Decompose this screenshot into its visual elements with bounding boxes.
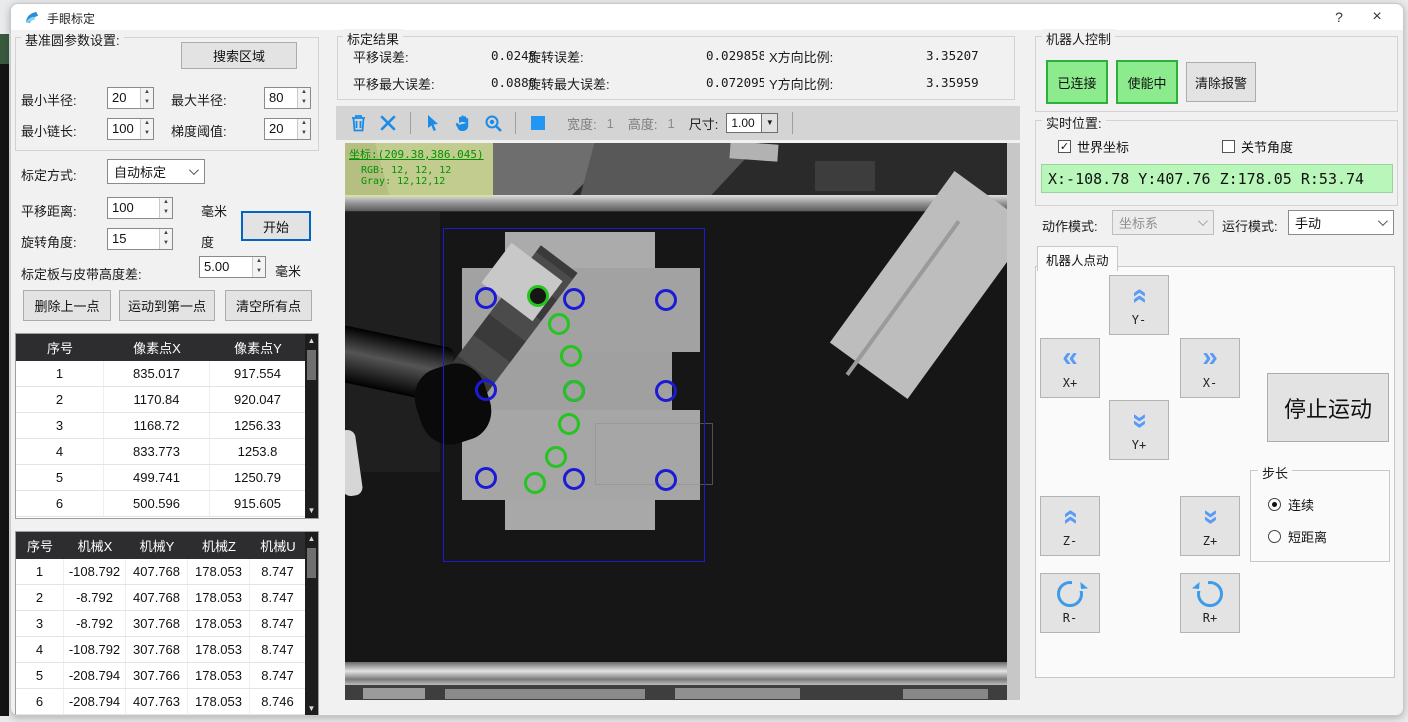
chevron-down-icon <box>1198 216 1208 226</box>
min-chain-label: 最小链长: <box>21 121 77 140</box>
pixel-table-scrollbar[interactable]: ▲▼ <box>305 334 318 518</box>
jog-r-plus-button[interactable]: R+ <box>1180 573 1240 633</box>
table-cell: 307.766 <box>126 663 188 688</box>
jog-x-minus-button[interactable]: » X- <box>1180 338 1240 398</box>
table-row[interactable]: 3-8.792307.768178.0538.747 <box>16 611 318 637</box>
table-cell: 5 <box>16 465 104 490</box>
table-cell: 307.768 <box>126 611 188 636</box>
table-cell: -108.792 <box>64 637 126 662</box>
height-diff-unit: 毫米 <box>275 261 301 280</box>
rotate-counterclockwise-icon <box>1197 581 1223 607</box>
calib-mode-select[interactable]: 自动标定 <box>107 159 205 184</box>
position-readout: X:-108.78 Y:407.76 Z:178.05 R:53.74 <box>1041 164 1393 193</box>
rotate-clockwise-icon <box>1057 581 1083 607</box>
table-cell: 8.747 <box>250 637 306 662</box>
table-cell: 3 <box>16 611 64 636</box>
table-cell: 407.768 <box>126 585 188 610</box>
step-group <box>1250 470 1390 562</box>
trans-max-err-label: 平移最大误差: <box>353 74 435 93</box>
column-header: 机械Y <box>126 536 188 555</box>
table-row[interactable]: 5499.7411250.79 <box>16 465 318 491</box>
max-radius-input[interactable]: 80▲▼ <box>264 87 311 109</box>
grid-point-circle <box>475 287 497 309</box>
table-row[interactable]: 21170.84920.047 <box>16 387 318 413</box>
run-mode-select[interactable]: 手动 <box>1288 210 1394 235</box>
table-cell: 8.747 <box>250 611 306 636</box>
spinner-arrows[interactable]: ▲▼ <box>159 198 172 218</box>
column-header: 像素点Y <box>210 338 306 357</box>
chevron-down-icon <box>189 165 199 175</box>
table-cell: 307.768 <box>126 637 188 662</box>
step-continuous-radio[interactable]: 连续 <box>1268 495 1314 514</box>
toolbar-separator <box>515 112 516 134</box>
delete-last-button[interactable]: 删除上一点 <box>23 290 111 321</box>
table-row[interactable]: 1-108.792407.768178.0538.747 <box>16 559 318 585</box>
height-label: 高度: <box>628 114 658 133</box>
column-header: 机械Z <box>188 536 250 555</box>
gray-text: Gray: 12,12,12 <box>361 176 489 187</box>
translate-label: 平移距离: <box>21 201 77 220</box>
table-cell: 3 <box>16 413 104 438</box>
table-cell: 1250.79 <box>210 465 306 490</box>
width-value: 1 <box>607 116 614 131</box>
column-header: 序号 <box>16 338 104 357</box>
jog-y-minus-button[interactable]: « Y- <box>1109 275 1169 335</box>
double-chevron-down-icon: » <box>1126 413 1152 429</box>
tab-robot-jog[interactable]: 机器人点动 <box>1037 246 1118 271</box>
rot-max-err-value: 0.072095 <box>706 75 764 90</box>
clear-all-button[interactable]: 清空所有点 <box>225 290 312 321</box>
spinner-arrows[interactable]: ▲▼ <box>297 119 310 139</box>
gradient-input[interactable]: 20▲▼ <box>264 118 311 140</box>
table-cell: 1253.8 <box>210 439 306 464</box>
table-cell: 178.053 <box>188 663 250 688</box>
connected-button[interactable]: 已连接 <box>1046 60 1108 104</box>
table-cell: -108.792 <box>64 559 126 584</box>
joint-angle-checkbox[interactable]: 关节角度 <box>1222 137 1293 156</box>
clear-alarm-button[interactable]: 清除报警 <box>1186 62 1256 102</box>
trash-icon[interactable] <box>346 111 370 135</box>
robot-table-header: 序号机械X机械Y机械Z机械U <box>16 532 318 559</box>
robot-table-scrollbar[interactable]: ▲▼ <box>305 532 318 716</box>
toolbar-separator <box>792 112 793 134</box>
world-coord-checkbox[interactable]: ✓ 世界坐标 <box>1058 137 1129 156</box>
table-cell: 2 <box>16 387 104 412</box>
height-diff-input[interactable]: 5.00▲▼ <box>199 256 266 278</box>
table-cell: 4 <box>16 637 64 662</box>
grid-point-circle <box>563 468 585 490</box>
table-row[interactable]: 6500.596915.605 <box>16 491 318 517</box>
joint-angle-label: 关节角度 <box>1241 137 1293 156</box>
rotate-input[interactable]: 15▲▼ <box>107 228 173 250</box>
radio-selected-icon <box>1268 498 1281 511</box>
size-value: 1.00 <box>727 114 761 132</box>
table-cell: -208.794 <box>64 689 126 714</box>
table-cell: 178.053 <box>188 559 250 584</box>
x-scale-label: X方向比例: <box>769 47 833 66</box>
pixel-info-overlay: 坐标:(209.38,386.045) RGB: 12, 12, 12 Gray… <box>345 143 493 197</box>
table-cell: 917.554 <box>210 361 306 386</box>
table-row[interactable]: 1835.017917.554 <box>16 361 318 387</box>
column-header: 机械X <box>64 536 126 555</box>
height-diff-label: 标定板与皮带高度差: <box>21 264 142 283</box>
gradient-label: 梯度阈值: <box>171 121 227 140</box>
camera-scene: 坐标:(209.38,386.045) RGB: 12, 12, 12 Gray… <box>345 143 1007 700</box>
table-cell: 178.053 <box>188 689 250 714</box>
run-mode-label: 运行模式: <box>1222 216 1278 235</box>
column-header: 机械U <box>250 536 306 555</box>
min-radius-label: 最小半径: <box>21 90 77 109</box>
grid-point-circle <box>655 469 677 491</box>
table-cell: 833.773 <box>104 439 210 464</box>
robot-point-table: 序号机械X机械Y机械Z机械U 1-108.792407.768178.0538.… <box>15 531 319 716</box>
camera-viewer[interactable]: 坐标:(209.38,386.045) RGB: 12, 12, 12 Gray… <box>345 143 1020 700</box>
jog-r-minus-button[interactable]: R- <box>1040 573 1100 633</box>
table-cell: 8.747 <box>250 585 306 610</box>
close-button[interactable]: × <box>1363 7 1391 27</box>
move-first-button[interactable]: 运动到第一点 <box>119 290 215 321</box>
table-cell: -208.794 <box>64 663 126 688</box>
table-cell: -8.792 <box>64 585 126 610</box>
width-label: 宽度: <box>567 114 597 133</box>
table-cell: -8.792 <box>64 611 126 636</box>
jog-x-plus-button[interactable]: « X+ <box>1040 338 1100 398</box>
checkbox-unchecked-icon <box>1222 140 1235 153</box>
table-cell: 8.746 <box>250 689 306 714</box>
pixel-point-table: 序号像素点X像素点Y 1835.017917.55421170.84920.04… <box>15 333 319 519</box>
trans-err-label: 平移误差: <box>353 47 409 66</box>
realtime-position-group <box>1035 120 1398 206</box>
grid-point-circle <box>655 380 677 402</box>
rect-select-icon[interactable] <box>526 111 550 135</box>
rot-max-err-label: 旋转最大误差: <box>528 74 610 93</box>
radio-unselected-icon <box>1268 530 1281 543</box>
table-row[interactable]: 5-208.794307.766178.0538.747 <box>16 663 318 689</box>
table-cell: 5 <box>16 663 64 688</box>
spinner-arrows[interactable]: ▲▼ <box>140 88 153 108</box>
combo-dropdown-icon[interactable]: ▼ <box>761 114 777 132</box>
circle-params-title: 基准圆参数设置: <box>21 30 124 49</box>
column-header: 序号 <box>16 536 64 555</box>
detected-point-circle <box>545 446 567 468</box>
table-cell: 6 <box>16 491 104 516</box>
pan-hand-icon[interactable] <box>451 111 475 135</box>
close-selection-icon[interactable] <box>376 111 400 135</box>
realtime-position-title: 实时位置: <box>1042 113 1106 132</box>
table-cell: 1168.72 <box>104 413 210 438</box>
table-row[interactable]: 2-8.792407.768178.0538.747 <box>16 585 318 611</box>
double-chevron-left-icon: « <box>1062 346 1078 372</box>
pixel-table-body: 1835.017917.55421170.84920.04731168.7212… <box>16 361 318 517</box>
app-logo-icon <box>25 10 40 25</box>
double-chevron-right-icon: » <box>1202 346 1218 372</box>
detected-point-circle <box>527 285 549 307</box>
table-cell: 407.763 <box>126 689 188 714</box>
detected-point-circle <box>563 380 585 402</box>
jog-z-plus-button[interactable]: » Z+ <box>1180 496 1240 556</box>
table-cell: 178.053 <box>188 637 250 662</box>
double-chevron-up-icon: « <box>1057 509 1083 525</box>
pixel-table-header: 序号像素点X像素点Y <box>16 334 318 361</box>
rotate-unit: 度 <box>201 232 214 251</box>
size-label: 尺寸: <box>689 114 719 133</box>
translate-unit: 毫米 <box>201 201 227 220</box>
min-chain-input[interactable]: 100▲▼ <box>107 118 154 140</box>
world-coord-label: 世界坐标 <box>1077 137 1129 156</box>
spinner-arrows[interactable]: ▲▼ <box>297 88 310 108</box>
table-row[interactable]: 31168.721256.33 <box>16 413 318 439</box>
start-button[interactable]: 开始 <box>241 211 311 241</box>
table-cell: 8.747 <box>250 559 306 584</box>
grid-point-circle <box>655 289 677 311</box>
spinner-arrows[interactable]: ▲▼ <box>140 119 153 139</box>
max-radius-label: 最大半径: <box>171 90 227 109</box>
table-cell: 1170.84 <box>104 387 210 412</box>
table-cell: 1 <box>16 361 104 386</box>
x-scale-value: 3.35207 <box>926 48 992 63</box>
table-cell: 2 <box>16 585 64 610</box>
detected-point-circle <box>548 313 570 335</box>
action-mode-select: 坐标系 <box>1112 210 1214 235</box>
results-group <box>337 36 1015 100</box>
chevron-down-icon <box>1378 216 1388 226</box>
table-cell: 920.047 <box>210 387 306 412</box>
table-cell: 4 <box>16 439 104 464</box>
detected-point-circle <box>558 413 580 435</box>
image-toolbar: 宽度: 1 高度: 1 尺寸: 1.00 ▼ <box>336 106 1020 140</box>
table-cell: 499.741 <box>104 465 210 490</box>
step-short-radio[interactable]: 短距离 <box>1268 527 1327 546</box>
help-button[interactable]: ? <box>1325 7 1353 27</box>
results-title: 标定结果 <box>343 29 403 48</box>
rotate-label: 旋转角度: <box>21 232 77 251</box>
table-cell: 835.017 <box>104 361 210 386</box>
robot-table-body: 1-108.792407.768178.0538.7472-8.792407.7… <box>16 559 318 715</box>
grid-point-circle <box>475 467 497 489</box>
y-scale-value: 3.35959 <box>926 75 992 90</box>
table-cell: 1 <box>16 559 64 584</box>
spinner-arrows[interactable]: ▲▼ <box>252 257 265 277</box>
table-cell: 6 <box>16 689 64 714</box>
translate-input[interactable]: 100▲▼ <box>107 197 173 219</box>
titlebar: 手眼标定 ? × <box>11 4 1403 30</box>
double-chevron-up-icon: « <box>1126 288 1152 304</box>
size-combo[interactable]: 1.00 ▼ <box>726 113 778 133</box>
table-row[interactable]: 4833.7731253.8 <box>16 439 318 465</box>
checkbox-checked-icon: ✓ <box>1058 140 1071 153</box>
cursor-icon[interactable] <box>421 111 445 135</box>
column-header: 像素点X <box>104 338 210 357</box>
rot-err-value: 0.029858 <box>706 48 764 63</box>
y-scale-label: Y方向比例: <box>769 74 833 93</box>
jog-z-minus-button[interactable]: « Z- <box>1040 496 1100 556</box>
step-short-label: 短距离 <box>1288 527 1327 546</box>
window-title: 手眼标定 <box>47 10 95 27</box>
calib-mode-label: 标定方式: <box>21 165 77 184</box>
coord-text: 坐标:(209.38,386.045) <box>349 148 484 161</box>
step-continuous-label: 连续 <box>1288 495 1314 514</box>
enabled-button[interactable]: 使能中 <box>1116 60 1178 104</box>
table-cell: 500.596 <box>104 491 210 516</box>
grid-point-circle <box>563 288 585 310</box>
stop-motion-button[interactable]: 停止运动 <box>1267 373 1389 442</box>
rgb-text: RGB: 12, 12, 12 <box>361 165 489 176</box>
background-strip <box>0 34 9 716</box>
rot-err-label: 旋转误差: <box>528 47 584 66</box>
detected-point-circle <box>560 345 582 367</box>
jog-y-plus-button[interactable]: » Y+ <box>1109 400 1169 460</box>
grid-point-circle <box>475 379 497 401</box>
search-area-button[interactable]: 搜索区域 <box>181 42 297 69</box>
robot-control-title: 机器人控制 <box>1042 29 1115 48</box>
detected-point-circle <box>524 472 546 494</box>
zoom-icon[interactable] <box>481 111 505 135</box>
table-cell: 915.605 <box>210 491 306 516</box>
table-cell: 178.053 <box>188 585 250 610</box>
viewer-scrollbar[interactable] <box>1007 143 1020 700</box>
toolbar-separator <box>410 112 411 134</box>
table-cell: 8.747 <box>250 663 306 688</box>
table-cell: 178.053 <box>188 611 250 636</box>
table-row[interactable]: 4-108.792307.768178.0538.747 <box>16 637 318 663</box>
action-mode-label: 动作模式: <box>1042 216 1098 235</box>
spinner-arrows[interactable]: ▲▼ <box>159 229 172 249</box>
app-screen: 手眼标定 ? × 基准圆参数设置: 搜索区域 最小半径: 20▲▼ 最大半径: … <box>0 0 1408 722</box>
table-cell: 1256.33 <box>210 413 306 438</box>
min-radius-input[interactable]: 20▲▼ <box>107 87 154 109</box>
table-row[interactable]: 6-208.794407.763178.0538.746 <box>16 689 318 715</box>
double-chevron-down-icon: » <box>1197 509 1223 525</box>
table-cell: 407.768 <box>126 559 188 584</box>
height-value: 1 <box>667 116 674 131</box>
step-group-title: 步长 <box>1258 463 1292 482</box>
